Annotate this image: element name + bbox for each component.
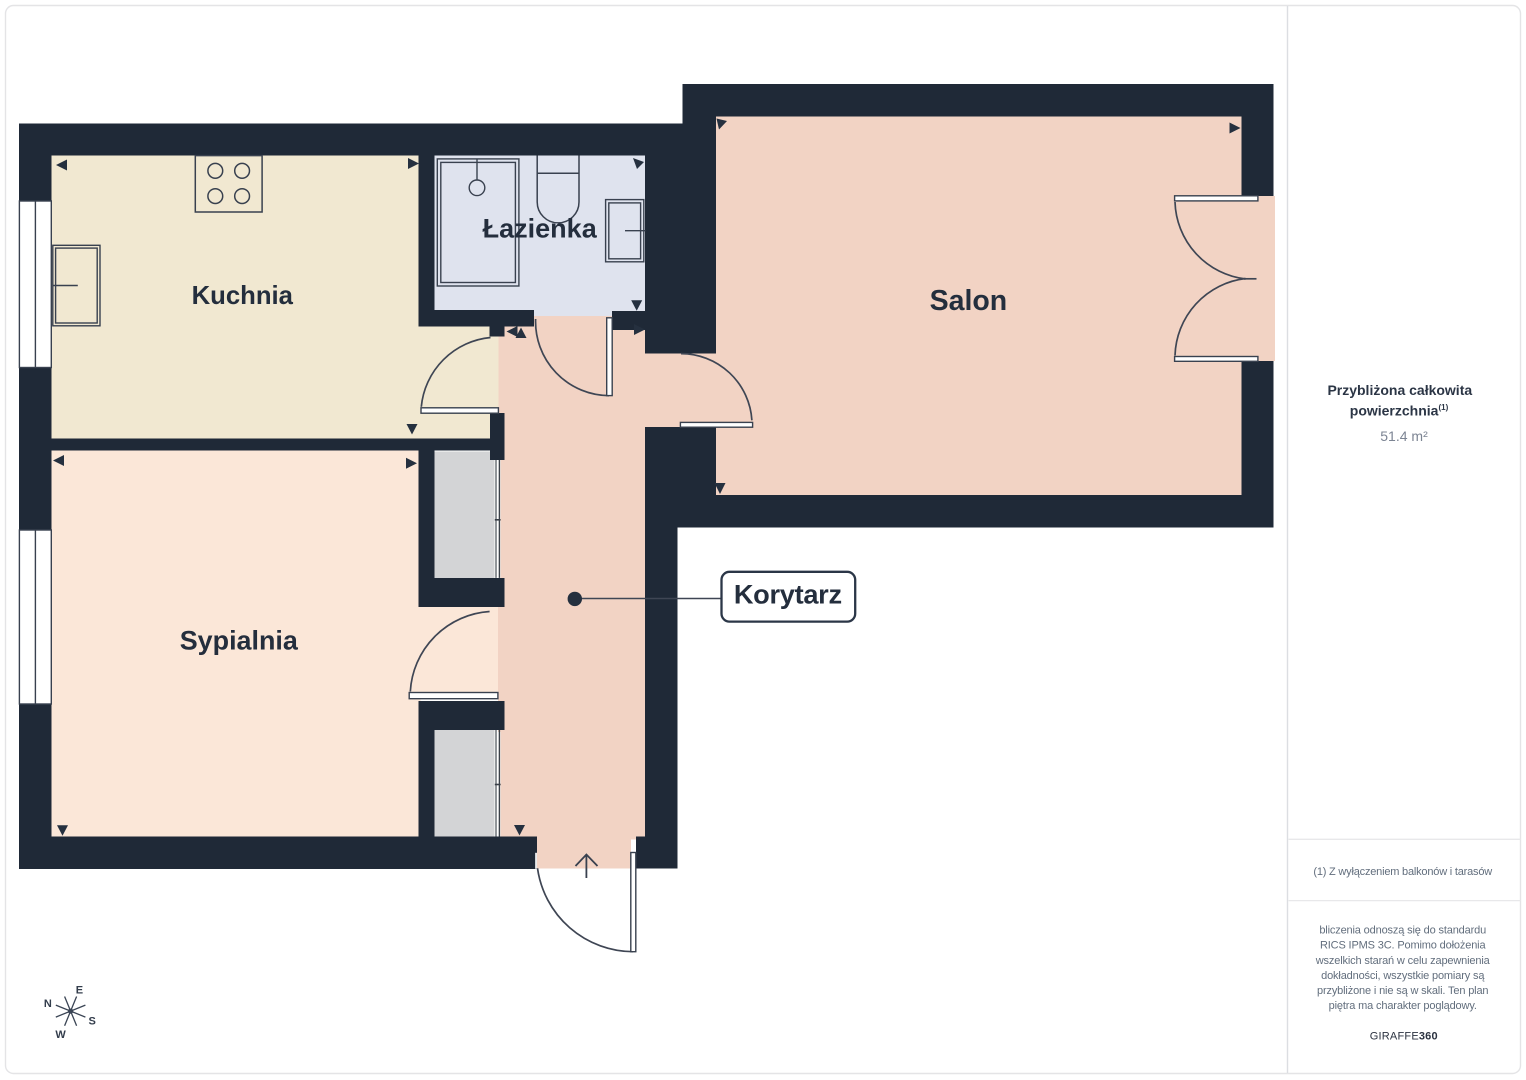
svg-text:przybliżone i nie są w skali.: przybliżone i nie są w skali. Ten plan	[1317, 985, 1488, 997]
svg-text:wszelkich starań w celu zapewn: wszelkich starań w celu zapewnienia	[1315, 955, 1491, 967]
svg-text:(1) Z wyłączeniem balkonów i t: (1) Z wyłączeniem balkonów i tarasów	[1313, 866, 1492, 878]
svg-text:RICS IPMS 3C. Pomimo dołożenia: RICS IPMS 3C. Pomimo dołożenia	[1320, 940, 1486, 952]
svg-text:piętra ma charakter poglądowy.: piętra ma charakter poglądowy.	[1329, 1000, 1477, 1012]
svg-text:Korytarz: Korytarz	[734, 578, 842, 609]
svg-text:Łazienka: Łazienka	[483, 214, 598, 244]
svg-text:Salon: Salon	[930, 285, 1008, 317]
svg-text:powierzchnia(1): powierzchnia(1)	[1350, 403, 1449, 419]
svg-text:51.4 m²: 51.4 m²	[1380, 428, 1428, 444]
svg-text:bliczenia odnoszą się do stand: bliczenia odnoszą się do standardu	[1319, 924, 1486, 936]
svg-text:Sypialnia: Sypialnia	[180, 626, 299, 656]
svg-text:Kuchnia: Kuchnia	[192, 282, 294, 310]
svg-text:dokładności, wszystkie pomiary: dokładności, wszystkie pomiary są	[1321, 970, 1485, 982]
svg-text:N: N	[44, 998, 52, 1010]
svg-text:S: S	[89, 1016, 96, 1028]
svg-text:E: E	[76, 984, 83, 996]
svg-text:GIRAFFE360: GIRAFFE360	[1370, 1031, 1438, 1043]
svg-text:W: W	[55, 1029, 66, 1041]
svg-text:Przybliżona całkowita: Przybliżona całkowita	[1327, 382, 1472, 398]
